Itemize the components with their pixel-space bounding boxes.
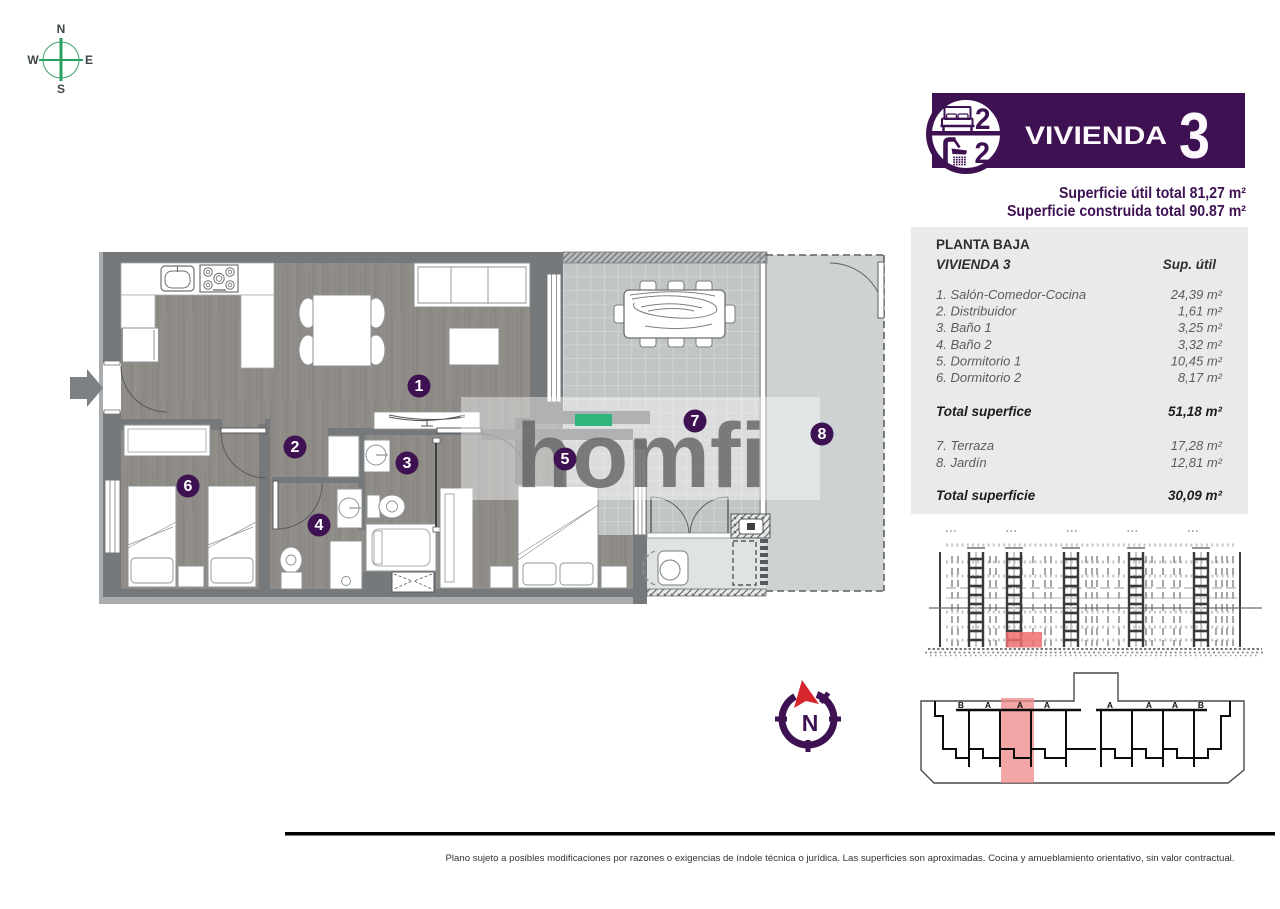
svg-text:30,09 m²: 30,09 m² — [1168, 488, 1223, 503]
svg-text:6. Dormitorio 2: 6. Dormitorio 2 — [936, 370, 1022, 385]
svg-text:A: A — [1017, 700, 1023, 710]
svg-text:A: A — [985, 700, 991, 710]
svg-text:8: 8 — [818, 426, 827, 443]
svg-text:A: A — [1044, 700, 1050, 710]
svg-text:4. Baño 2: 4. Baño 2 — [936, 337, 992, 352]
svg-text:1. Salón-Comedor-Cocina: 1. Salón-Comedor-Cocina — [936, 287, 1086, 302]
svg-text:10,45 m²: 10,45 m² — [1171, 353, 1223, 368]
svg-text:PLANTA BAJA: PLANTA BAJA — [936, 237, 1030, 252]
svg-text:S: S — [57, 82, 65, 96]
svg-text:Total superfice: Total superfice — [936, 404, 1032, 419]
svg-text:17,28 m²: 17,28 m² — [1171, 438, 1223, 453]
svg-text:5: 5 — [561, 451, 570, 468]
svg-text:8. Jardín: 8. Jardín — [936, 455, 987, 470]
svg-text:3: 3 — [1179, 99, 1210, 172]
svg-text:8,17 m²: 8,17 m² — [1178, 370, 1223, 385]
svg-text:Superficie construida total 90: Superficie construida total 90.87 m² — [1007, 203, 1246, 220]
svg-text:A: A — [1172, 700, 1178, 710]
svg-text:7. Terraza: 7. Terraza — [936, 438, 994, 453]
svg-text:4: 4 — [315, 517, 324, 534]
svg-text:2. Distribuidor: 2. Distribuidor — [935, 304, 1017, 319]
svg-text:VIVIENDA 3: VIVIENDA 3 — [936, 257, 1011, 272]
svg-text:3. Baño 1: 3. Baño 1 — [936, 320, 992, 335]
svg-text:B: B — [1198, 700, 1204, 710]
svg-text:Plano sujeto a posibles modifi: Plano sujeto a posibles modificaciones p… — [446, 853, 1235, 864]
svg-text:1: 1 — [415, 378, 424, 395]
svg-text:Sup. útil: Sup. útil — [1163, 257, 1216, 272]
svg-text:W: W — [27, 53, 39, 67]
svg-text:homfi: homfi — [516, 405, 766, 507]
svg-text:6: 6 — [184, 478, 193, 495]
svg-text:A: A — [1107, 700, 1113, 710]
svg-text:5. Dormitorio 1: 5. Dormitorio 1 — [936, 353, 1021, 368]
svg-text:2: 2 — [975, 103, 991, 136]
svg-text:A: A — [1146, 700, 1152, 710]
svg-text:Superficie útil total 81,27 m²: Superficie útil total 81,27 m² — [1059, 185, 1246, 202]
svg-text:N: N — [802, 710, 819, 736]
svg-text:B: B — [958, 700, 964, 710]
svg-text:3,32 m²: 3,32 m² — [1178, 337, 1223, 352]
svg-text:12,81 m²: 12,81 m² — [1171, 455, 1223, 470]
svg-text:2: 2 — [291, 439, 300, 456]
svg-text:Total superficie: Total superficie — [936, 488, 1036, 503]
svg-text:3,25 m²: 3,25 m² — [1178, 320, 1223, 335]
svg-text:24,39 m²: 24,39 m² — [1170, 287, 1223, 302]
svg-text:2: 2 — [975, 137, 991, 170]
svg-text:N: N — [57, 22, 66, 36]
svg-text:VIVIENDA: VIVIENDA — [1025, 122, 1167, 150]
svg-text:3: 3 — [403, 455, 412, 472]
svg-text:E: E — [85, 53, 93, 67]
svg-text:51,18 m²: 51,18 m² — [1168, 404, 1223, 419]
svg-text:1,61 m²: 1,61 m² — [1178, 304, 1223, 319]
svg-text:7: 7 — [691, 413, 700, 430]
